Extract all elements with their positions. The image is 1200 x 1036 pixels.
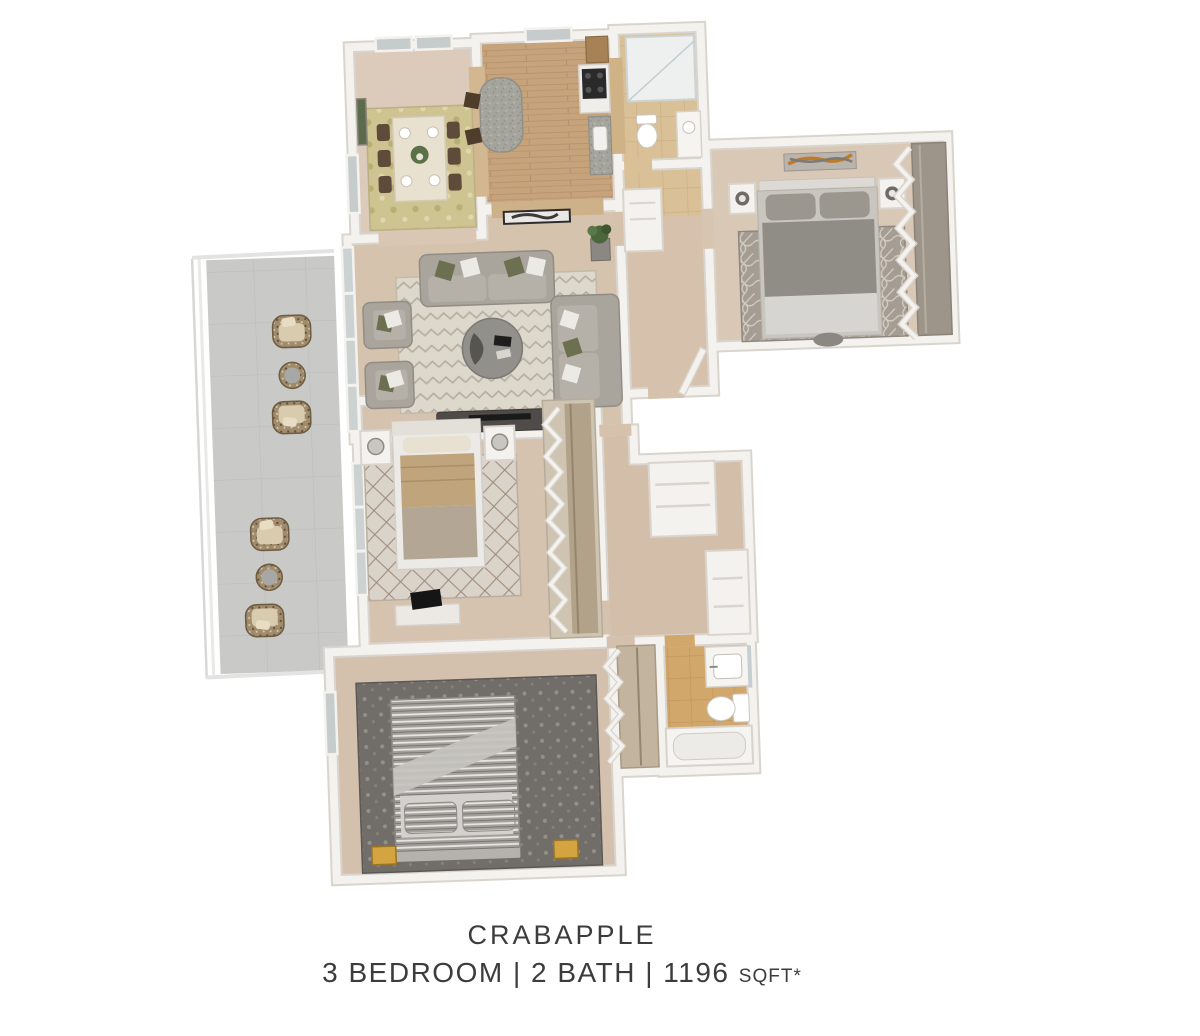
window xyxy=(525,27,571,42)
place-setting xyxy=(399,128,410,139)
plan-sqft-label: SQFT* xyxy=(739,966,802,987)
wicker-chair xyxy=(250,518,289,551)
pillow xyxy=(402,435,471,453)
bar-stool xyxy=(463,92,480,109)
dining-room xyxy=(357,95,477,231)
vanity xyxy=(705,646,750,688)
sofa xyxy=(419,250,555,307)
plan-specs-main: 3 BEDROOM | 2 BATH | 1196 xyxy=(322,957,729,988)
wicker-chair xyxy=(245,604,284,637)
kitchen-sink xyxy=(593,126,608,150)
plan-specs: 3 BEDROOM | 2 BATH | 1196 SQFT* xyxy=(0,957,1124,989)
coffee-table xyxy=(461,317,523,379)
bedroom-2-closet xyxy=(542,399,602,639)
vanity xyxy=(676,111,702,158)
loveseat xyxy=(551,294,623,408)
wicker-chair xyxy=(272,401,311,434)
wicker-chair xyxy=(272,315,311,348)
pillow xyxy=(404,802,457,834)
master-bed xyxy=(757,177,882,339)
window xyxy=(415,36,451,50)
books xyxy=(494,335,512,347)
dining-wall-art xyxy=(357,99,368,145)
floor-plan-rendering xyxy=(0,0,1200,1036)
place-setting xyxy=(401,176,412,187)
kitchen-island xyxy=(479,77,524,152)
pillow xyxy=(526,256,546,276)
nightstand xyxy=(729,183,756,214)
bed-3 xyxy=(391,696,521,862)
armchair xyxy=(363,301,413,349)
caption: CRABAPPLE 3 BEDROOM | 2 BATH | 1196 SQFT… xyxy=(0,920,1124,989)
window xyxy=(324,692,337,754)
gold-bench xyxy=(554,840,579,859)
armchair xyxy=(365,361,415,409)
pantry-cabinet xyxy=(586,36,609,63)
window xyxy=(347,155,360,213)
nightstand xyxy=(360,430,391,465)
storage-closet xyxy=(706,550,751,635)
sink xyxy=(683,121,695,133)
master-wall-art xyxy=(784,152,857,172)
bar-stool xyxy=(465,127,483,145)
duvet xyxy=(762,219,877,299)
range xyxy=(579,64,611,113)
mirror xyxy=(749,646,750,688)
place-setting xyxy=(429,175,440,186)
pillow xyxy=(765,193,816,221)
floor-plan-page: CRABAPPLE 3 BEDROOM | 2 BATH | 1196 SQFT… xyxy=(0,0,1200,1036)
gold-bench xyxy=(372,846,397,865)
shower-tub xyxy=(626,35,696,101)
bathtub xyxy=(666,726,753,767)
plan-name: CRABAPPLE xyxy=(0,920,1124,951)
linen-closet xyxy=(649,461,718,537)
potted-plant xyxy=(587,224,612,261)
balcony xyxy=(192,251,349,679)
window xyxy=(376,37,412,51)
folded-sheet xyxy=(765,293,878,335)
pillow xyxy=(819,191,870,219)
bed-2 xyxy=(392,419,485,570)
place-setting xyxy=(427,127,438,138)
nightstand xyxy=(484,426,515,461)
duvet xyxy=(402,505,478,560)
pillow xyxy=(462,800,515,832)
toilet-icon xyxy=(636,115,657,149)
